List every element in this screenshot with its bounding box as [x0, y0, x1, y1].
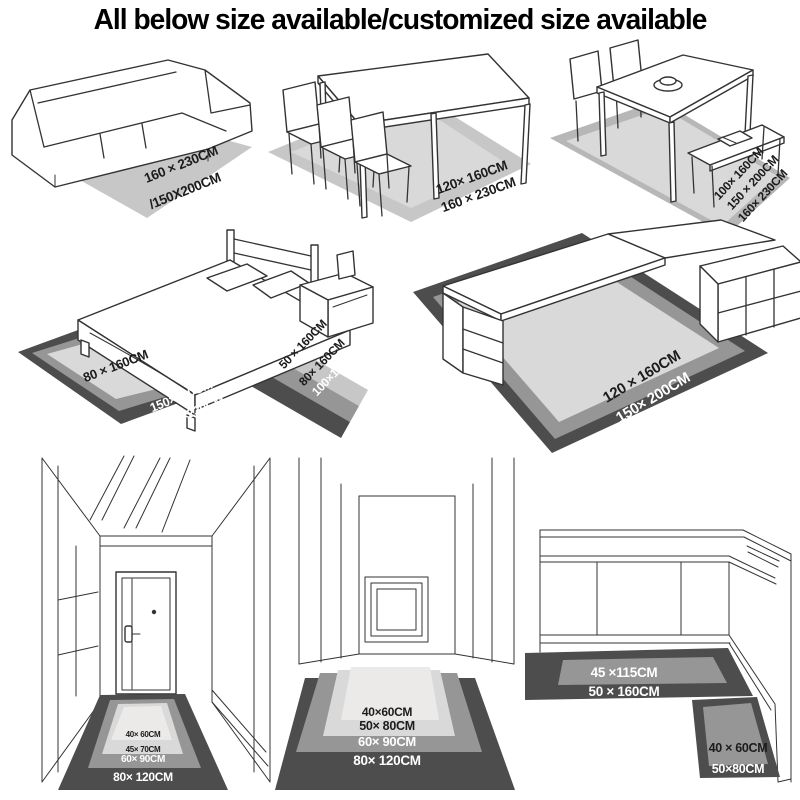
sofa-illustration — [0, 45, 260, 240]
door-lock — [125, 626, 132, 642]
dining-table-illustration — [263, 40, 545, 235]
size-label-kitchen-runner-outer: 50 × 160CM — [574, 684, 674, 699]
size-chart-image: All below size available/customized size… — [0, 0, 800, 800]
size-label-doormat-2: 45× 70CM — [93, 745, 193, 754]
size-label-doormat-3: 60× 90CM — [93, 754, 193, 765]
wall-frame-drawing — [365, 577, 428, 642]
size-label-kitchen-mat-outer: 50×80CM — [688, 762, 788, 776]
size-label-doormat-4: 80× 120CM — [93, 770, 193, 784]
scene-dining-table — [263, 40, 545, 235]
size-label-corridor-2: 50× 80CM — [337, 719, 437, 733]
entry-door-drawing — [116, 572, 176, 694]
size-label-corridor-4: 80× 120CM — [337, 753, 437, 768]
size-label-kitchen-mat-inner: 40 × 60CM — [688, 741, 788, 755]
scene-desk — [403, 218, 800, 463]
hallway-door-illustration — [28, 450, 285, 795]
size-label-doormat-1: 40× 60CM — [93, 730, 193, 739]
scene-hallway-door — [28, 450, 285, 795]
corridor-walls-drawing — [299, 458, 514, 664]
door-peephole — [152, 610, 156, 614]
size-label-kitchen-runner-inner: 45 ×115CM — [574, 665, 674, 680]
scene-sofa — [0, 45, 260, 240]
desk-illustration — [403, 218, 800, 463]
size-label-corridor-1: 40×60CM — [337, 705, 437, 719]
size-label-corridor-3: 60× 90CM — [337, 734, 437, 749]
